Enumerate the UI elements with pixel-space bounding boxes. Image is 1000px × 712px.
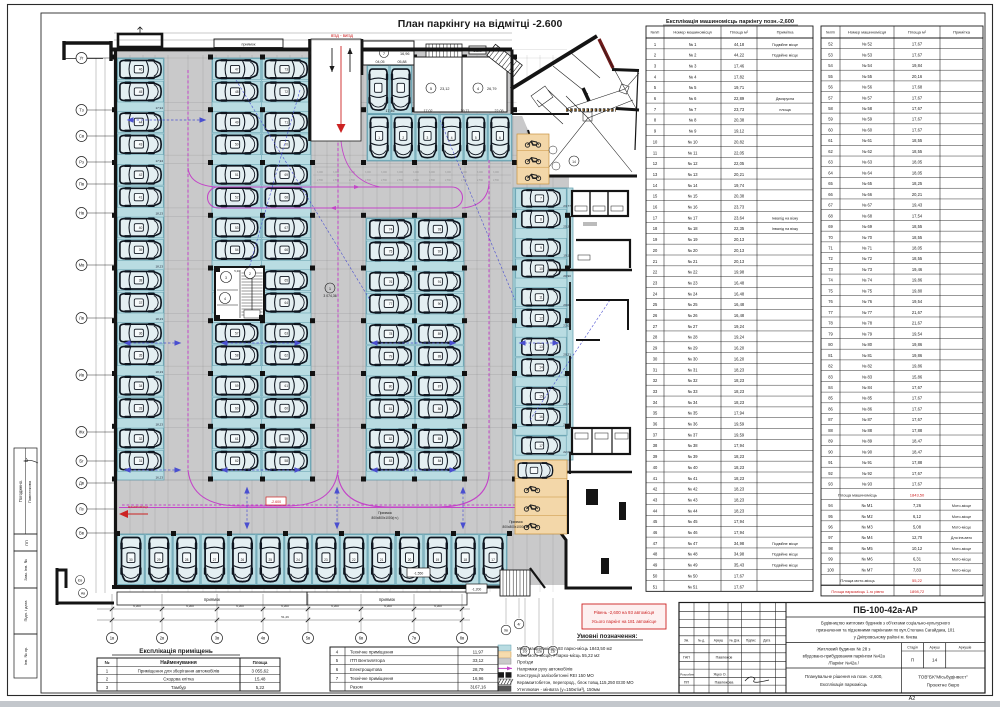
svg-text:Аркушів: Аркушів xyxy=(959,646,972,650)
svg-text:18,23: 18,23 xyxy=(734,400,745,405)
svg-text:Подвійне місце: Подвійне місце xyxy=(772,553,798,557)
svg-text:18: 18 xyxy=(653,226,658,231)
svg-text:17,98: 17,98 xyxy=(462,580,470,584)
svg-text:Номер машиномісця: Номер машиномісця xyxy=(673,30,711,35)
svg-text:10: 10 xyxy=(539,267,543,271)
svg-text:17,98: 17,98 xyxy=(155,580,163,584)
svg-text:Аркуш: Аркуш xyxy=(930,646,940,650)
svg-text:19,74: 19,74 xyxy=(734,183,745,188)
svg-text:17,98: 17,98 xyxy=(406,580,414,584)
svg-text:24: 24 xyxy=(653,291,658,296)
svg-text:17,67: 17,67 xyxy=(912,127,923,132)
svg-text:6,300: 6,300 xyxy=(133,604,141,608)
svg-text:1843,50: 1843,50 xyxy=(910,492,925,497)
svg-text:3: 3 xyxy=(225,276,227,280)
svg-text:Тз: Тз xyxy=(79,108,84,113)
svg-text:54: 54 xyxy=(828,63,833,68)
svg-text:63: 63 xyxy=(828,160,833,165)
svg-text:79: 79 xyxy=(828,331,833,336)
svg-text:25: 25 xyxy=(653,302,658,307)
svg-text:1в: 1в xyxy=(110,636,115,641)
svg-text:№ 83: № 83 xyxy=(862,374,873,379)
svg-text:Приямок: Приямок xyxy=(509,520,523,524)
svg-text:18,23: 18,23 xyxy=(734,389,745,394)
svg-text:28,79: 28,79 xyxy=(473,667,485,672)
svg-text:24: 24 xyxy=(296,558,300,562)
svg-text:Утеплювач - мінвата (у=150кг/м: Утеплювач - мінвата (у=150кг/м³), 150мм xyxy=(517,687,600,692)
svg-text:Ив: Ив xyxy=(79,373,85,378)
svg-text:3 074,36: 3 074,36 xyxy=(323,294,336,298)
svg-text:№п/п: №п/п xyxy=(651,31,660,35)
svg-text:2: 2 xyxy=(249,272,251,276)
svg-text:№ 84: № 84 xyxy=(862,385,873,390)
svg-text:800х800х1000(гл.): 800х800х1000(гл.) xyxy=(503,525,530,529)
svg-text:3: 3 xyxy=(427,136,429,140)
svg-text:3,000: 3,000 xyxy=(445,171,452,174)
svg-text:18,55: 18,55 xyxy=(912,235,923,240)
svg-text:7,26: 7,26 xyxy=(913,503,922,508)
svg-text:№ 90: № 90 xyxy=(862,449,873,454)
svg-text:81: 81 xyxy=(828,353,833,358)
svg-text:42: 42 xyxy=(139,173,143,177)
svg-text:Єв: Єв xyxy=(78,579,83,583)
svg-text:№ М5: № М5 xyxy=(861,546,873,551)
svg-text:20: 20 xyxy=(653,248,658,253)
svg-text:48: 48 xyxy=(653,552,658,557)
svg-text:6в: 6в xyxy=(359,636,364,641)
svg-text:18,23: 18,23 xyxy=(734,378,745,383)
svg-text:20,13: 20,13 xyxy=(734,259,745,264)
svg-text:Розробив: Розробив xyxy=(680,672,694,676)
svg-text:14: 14 xyxy=(572,160,576,164)
svg-text:50: 50 xyxy=(235,143,239,147)
svg-text:18,23: 18,23 xyxy=(734,367,745,372)
svg-text:№ М7: № М7 xyxy=(861,567,873,572)
svg-text:1898,72: 1898,72 xyxy=(910,589,925,594)
svg-text:35: 35 xyxy=(139,354,143,358)
svg-text:22,05: 22,05 xyxy=(734,161,745,166)
svg-text:88: 88 xyxy=(438,354,442,358)
svg-text:План паркінгу на відмітці -2.6: План паркінгу на відмітці -2.600 xyxy=(398,18,563,30)
svg-text:85: 85 xyxy=(828,396,833,401)
svg-text:87: 87 xyxy=(438,385,442,389)
svg-text:17,67: 17,67 xyxy=(912,52,923,57)
svg-text:№ 81: № 81 xyxy=(862,353,873,358)
svg-text:№ 20: № 20 xyxy=(687,248,698,253)
svg-text:20,16: 20,16 xyxy=(912,74,923,79)
svg-text:20,21: 20,21 xyxy=(734,172,745,177)
svg-text:Експлікація паркомісць: Експлікація паркомісць xyxy=(820,682,868,687)
svg-text:19,98: 19,98 xyxy=(734,270,745,275)
svg-text:Приміщення для зберігання авто: Приміщення для зберігання автомобілів xyxy=(138,668,220,673)
svg-text:17,98: 17,98 xyxy=(490,580,498,584)
svg-text:№: № xyxy=(105,660,110,665)
svg-text:65: 65 xyxy=(284,279,288,283)
svg-text:73: 73 xyxy=(284,68,288,72)
svg-text:Павлюкова: Павлюкова xyxy=(715,680,734,684)
svg-text:18,23: 18,23 xyxy=(734,465,745,470)
svg-text:№ 71: № 71 xyxy=(862,246,873,251)
svg-text:19,59: 19,59 xyxy=(734,422,745,427)
svg-text:11: 11 xyxy=(653,150,658,155)
svg-text:18,05: 18,05 xyxy=(912,246,923,251)
svg-text:34,98: 34,98 xyxy=(734,541,745,546)
svg-text:32: 32 xyxy=(653,378,658,383)
svg-text:35,43: 35,43 xyxy=(734,563,745,568)
svg-text:51: 51 xyxy=(235,173,239,177)
svg-text:Сходова клітка: Сходова клітка xyxy=(163,677,194,682)
svg-text:89: 89 xyxy=(828,439,833,444)
svg-text:-1.200: -1.200 xyxy=(472,588,482,592)
svg-text:34: 34 xyxy=(139,384,143,388)
svg-text:41: 41 xyxy=(139,195,143,199)
svg-text:18,05: 18,05 xyxy=(912,170,923,175)
svg-text:52: 52 xyxy=(235,195,239,199)
svg-text:20: 20 xyxy=(408,558,412,562)
svg-text:Площа м²: Площа м² xyxy=(908,30,927,35)
svg-text:21: 21 xyxy=(380,558,384,562)
svg-text:30: 30 xyxy=(129,558,133,562)
svg-text:39: 39 xyxy=(653,454,658,459)
svg-text:№ 35: № 35 xyxy=(687,411,698,416)
svg-text:17,88: 17,88 xyxy=(912,428,923,433)
svg-text:15: 15 xyxy=(653,194,658,199)
svg-text:А2: А2 xyxy=(909,696,916,702)
svg-text:Лв: Лв xyxy=(79,316,85,321)
svg-text:6,31: 6,31 xyxy=(913,557,922,562)
svg-text:№ 9: № 9 xyxy=(689,129,698,134)
svg-text:27: 27 xyxy=(653,324,658,329)
svg-text:19,71: 19,71 xyxy=(734,85,745,90)
svg-text:Рз: Рз xyxy=(79,160,84,165)
svg-text:Зам. Інв. №: Зам. Інв. № xyxy=(23,559,28,581)
svg-text:17,94: 17,94 xyxy=(734,530,745,535)
svg-text:15: 15 xyxy=(539,394,543,398)
svg-text:58: 58 xyxy=(235,354,239,358)
svg-text:Разом: Разом xyxy=(350,685,363,690)
svg-text:92: 92 xyxy=(438,250,442,254)
svg-text:9в: 9в xyxy=(504,628,508,632)
svg-text:10,12: 10,12 xyxy=(912,546,923,551)
svg-text:71: 71 xyxy=(284,120,288,124)
svg-text:2,550: 2,550 xyxy=(429,179,436,182)
svg-text:Дата: Дата xyxy=(763,639,770,643)
svg-text:6: 6 xyxy=(499,136,501,140)
svg-text:16: 16 xyxy=(653,205,658,210)
svg-text:55,22: 55,22 xyxy=(912,578,923,583)
svg-text:Двоярусна: Двоярусна xyxy=(776,97,795,101)
svg-text:12: 12 xyxy=(539,316,543,320)
svg-text:№ 19: № 19 xyxy=(687,237,698,242)
svg-text:№ 55: № 55 xyxy=(862,74,873,79)
svg-text:28: 28 xyxy=(185,558,189,562)
svg-text:Площа паркомісць 1-го рівня: Площа паркомісць 1-го рівня xyxy=(831,589,883,594)
svg-text:56: 56 xyxy=(828,85,833,90)
svg-text:Подвійне місце: Подвійне місце xyxy=(772,542,798,546)
svg-text:83: 83 xyxy=(389,459,393,463)
svg-text:№ 27: № 27 xyxy=(687,324,698,329)
svg-text:93: 93 xyxy=(438,227,442,231)
svg-text:№ 23: № 23 xyxy=(687,280,698,285)
svg-text:№ 39: № 39 xyxy=(687,454,698,459)
svg-text:17,94: 17,94 xyxy=(155,106,163,110)
svg-text:17,67: 17,67 xyxy=(912,95,923,100)
svg-text:82: 82 xyxy=(828,364,833,369)
svg-text:Павленкова: Павленкова xyxy=(27,480,32,503)
svg-text:№ 36: № 36 xyxy=(687,422,698,427)
svg-text:Мото-місце: Мото-місце xyxy=(952,558,971,562)
svg-text:17,46: 17,46 xyxy=(734,63,745,68)
svg-text:№ 32: № 32 xyxy=(687,378,698,383)
svg-text:№ 56: № 56 xyxy=(862,85,873,90)
svg-text:машиномісця: машиномісця xyxy=(128,505,148,509)
svg-text:№ 74: № 74 xyxy=(862,278,873,283)
svg-text:20,21: 20,21 xyxy=(912,192,923,197)
svg-text:№ 34: № 34 xyxy=(687,400,698,405)
svg-text:33: 33 xyxy=(139,406,143,410)
svg-text:16,20: 16,20 xyxy=(734,346,745,351)
svg-text:№ 24: № 24 xyxy=(687,291,698,296)
svg-text:19,24: 19,24 xyxy=(734,324,745,329)
svg-text:54: 54 xyxy=(235,248,239,252)
svg-text:Вв: Вв xyxy=(79,531,85,536)
svg-text:41: 41 xyxy=(653,476,658,481)
svg-text:Стадія: Стадія xyxy=(907,646,918,650)
svg-text:№ Док.: № Док. xyxy=(730,639,741,643)
svg-text:98: 98 xyxy=(828,546,833,551)
svg-text:19,43: 19,43 xyxy=(912,203,923,208)
svg-text:26: 26 xyxy=(653,313,658,318)
svg-text:№ 88: № 88 xyxy=(862,428,873,433)
svg-text:№ 26: № 26 xyxy=(687,313,698,318)
svg-text:2,550: 2,550 xyxy=(445,179,452,182)
svg-text:36: 36 xyxy=(139,331,143,335)
svg-text:31: 31 xyxy=(653,367,658,372)
svg-text:№ 59: № 59 xyxy=(862,117,873,122)
svg-text:17,82: 17,82 xyxy=(734,74,745,79)
svg-text:3,000: 3,000 xyxy=(397,171,404,174)
svg-text:23: 23 xyxy=(653,280,658,285)
svg-text:№ 18: № 18 xyxy=(687,226,698,231)
svg-text:№ 7: № 7 xyxy=(689,107,698,112)
svg-text:16,96: 16,96 xyxy=(400,52,410,56)
svg-text:52: 52 xyxy=(828,42,833,47)
svg-text:Площа машиномісць: Площа машиномісць xyxy=(838,492,877,497)
svg-text:81: 81 xyxy=(389,407,393,411)
svg-text:№ 33: № 33 xyxy=(687,389,698,394)
svg-text:18,23: 18,23 xyxy=(734,497,745,502)
svg-text:87: 87 xyxy=(828,417,833,422)
svg-text:вбудовано-прибудованим паркінг: вбудовано-прибудованим паркінгом №42а xyxy=(803,654,886,659)
svg-text:№ 53: № 53 xyxy=(862,52,873,57)
svg-text:№ 77: № 77 xyxy=(862,310,873,315)
svg-text:19,24: 19,24 xyxy=(734,335,745,340)
svg-text:17,67: 17,67 xyxy=(912,42,923,47)
svg-text:62: 62 xyxy=(284,354,288,358)
svg-text:№ 72: № 72 xyxy=(862,256,873,261)
svg-text:№ 76: № 76 xyxy=(862,299,873,304)
svg-text:№ 3: № 3 xyxy=(689,63,698,68)
svg-text:№ 25: № 25 xyxy=(687,302,698,307)
svg-text:17,98: 17,98 xyxy=(322,580,330,584)
svg-text:17,88: 17,88 xyxy=(912,460,923,465)
svg-text:74: 74 xyxy=(389,227,393,231)
svg-text:17,54: 17,54 xyxy=(912,213,923,218)
svg-text:66: 66 xyxy=(284,248,288,252)
svg-text:69: 69 xyxy=(284,173,288,177)
svg-text:17,98: 17,98 xyxy=(267,580,275,584)
svg-text:ГАП: ГАП xyxy=(683,656,690,660)
svg-text:№ 6: № 6 xyxy=(689,96,698,101)
svg-text:16: 16 xyxy=(539,415,543,419)
svg-text:61: 61 xyxy=(284,384,288,388)
svg-text:19,54: 19,54 xyxy=(912,299,923,304)
svg-text:25: 25 xyxy=(268,558,272,562)
svg-text:18,55: 18,55 xyxy=(912,224,923,229)
svg-text:Конструкції залізобетонні REI: Конструкції залізобетонні REI 150 МО xyxy=(517,673,594,678)
svg-text:20,21: 20,21 xyxy=(563,352,571,356)
svg-text:6,12: 6,12 xyxy=(913,514,922,519)
svg-text:20,38: 20,38 xyxy=(734,194,745,199)
svg-text:№ 5: № 5 xyxy=(689,85,698,90)
svg-text:№ 75: № 75 xyxy=(862,288,873,293)
svg-text:№ 91: № 91 xyxy=(862,460,873,465)
svg-text:Жк: Жк xyxy=(79,430,85,435)
svg-text:21: 21 xyxy=(653,259,658,264)
svg-text:19: 19 xyxy=(653,237,658,242)
svg-text:6,300: 6,300 xyxy=(281,604,289,608)
svg-text:Мото-місце: Мото-місце xyxy=(952,568,971,572)
svg-text:Електрощитова: Електрощитова xyxy=(350,667,383,672)
svg-text:21,67: 21,67 xyxy=(912,321,923,326)
svg-text:83: 83 xyxy=(828,374,833,379)
svg-text:17: 17 xyxy=(491,558,495,562)
svg-text:44,22: 44,22 xyxy=(734,53,745,58)
svg-text:№ 52: № 52 xyxy=(862,42,873,47)
svg-text:№ 46: № 46 xyxy=(687,530,698,535)
svg-text:Площа м²: Площа м² xyxy=(730,30,749,35)
svg-text:75: 75 xyxy=(828,288,833,293)
svg-text:14: 14 xyxy=(653,183,658,188)
svg-text:№ М1: № М1 xyxy=(861,503,873,508)
svg-text:80: 80 xyxy=(389,385,393,389)
svg-text:48: 48 xyxy=(235,90,239,94)
svg-text:№ 45: № 45 xyxy=(687,519,698,524)
svg-text:17,68: 17,68 xyxy=(912,85,923,90)
svg-text:69: 69 xyxy=(828,224,833,229)
svg-text:Примітка: Примітка xyxy=(777,30,795,35)
svg-text:90: 90 xyxy=(438,302,442,306)
svg-text:60: 60 xyxy=(828,127,833,132)
svg-text:Дв: Дв xyxy=(79,481,85,486)
svg-text:№ 80: № 80 xyxy=(862,342,873,347)
svg-text:58: 58 xyxy=(828,106,833,111)
svg-text:3,000: 3,000 xyxy=(317,171,324,174)
svg-text:18,23: 18,23 xyxy=(734,508,745,513)
svg-text:Підпис: Підпис xyxy=(746,639,756,643)
svg-text:22,89: 22,89 xyxy=(734,96,745,101)
svg-text:16,48: 16,48 xyxy=(734,302,745,307)
svg-text:№ 51: № 51 xyxy=(687,584,698,589)
svg-text:5в: 5в xyxy=(306,636,311,641)
svg-text:Підп. і дата: Підп. і дата xyxy=(23,600,28,622)
svg-text:№ 15: № 15 xyxy=(687,194,698,199)
svg-text:№ 54: № 54 xyxy=(862,63,873,68)
svg-text:17,98: 17,98 xyxy=(295,580,303,584)
svg-text:№ 49: № 49 xyxy=(687,563,698,568)
svg-text:17,98: 17,98 xyxy=(434,580,442,584)
svg-text:47: 47 xyxy=(653,541,658,546)
svg-text:5,08: 5,08 xyxy=(913,524,922,529)
svg-text:4в: 4в xyxy=(261,636,266,641)
svg-text:53: 53 xyxy=(828,52,833,57)
svg-text:62: 62 xyxy=(235,459,239,463)
svg-text:75: 75 xyxy=(389,250,393,254)
svg-text:Тамбур: Тамбур xyxy=(171,685,186,690)
svg-text:№ 2: № 2 xyxy=(689,53,698,58)
svg-text:ПП: ПП xyxy=(684,680,690,684)
svg-text:5: 5 xyxy=(475,136,477,140)
svg-text:95: 95 xyxy=(828,514,833,519)
svg-text:17,98: 17,98 xyxy=(183,580,191,584)
svg-text:22,35: 22,35 xyxy=(734,226,745,231)
svg-text:16,48: 16,48 xyxy=(734,313,745,318)
svg-text:19,71: 19,71 xyxy=(461,109,470,113)
svg-text:50: 50 xyxy=(653,573,658,578)
svg-text:6,300: 6,300 xyxy=(434,604,442,608)
svg-text:28: 28 xyxy=(653,335,658,340)
svg-text:17,67: 17,67 xyxy=(912,117,923,122)
svg-text:2,550: 2,550 xyxy=(317,179,324,182)
svg-text:№ 41: № 41 xyxy=(687,476,698,481)
svg-text:88: 88 xyxy=(828,428,833,433)
svg-text:17,67: 17,67 xyxy=(912,406,923,411)
svg-text:№ 73: № 73 xyxy=(862,267,873,272)
svg-text:23,12: 23,12 xyxy=(440,87,450,91)
svg-text:17,67: 17,67 xyxy=(912,417,923,422)
svg-text:3,000: 3,000 xyxy=(493,171,500,174)
svg-text:№ 78: № 78 xyxy=(862,321,873,326)
svg-text:Номер машиномісця: Номер машиномісця xyxy=(848,30,886,35)
svg-text:Усього паркінг на 181 автомісц: Усього паркінг на 181 автомісце xyxy=(592,619,657,624)
svg-text:49: 49 xyxy=(235,120,239,124)
svg-text:№ 64: № 64 xyxy=(862,170,873,175)
svg-text:18: 18 xyxy=(463,558,467,562)
svg-text:№ 4: № 4 xyxy=(689,74,698,79)
svg-text:2,550: 2,550 xyxy=(381,179,388,182)
svg-text:67: 67 xyxy=(284,226,288,230)
svg-text:57: 57 xyxy=(828,95,833,100)
svg-text:№ 44: № 44 xyxy=(687,508,698,513)
svg-text:70: 70 xyxy=(828,235,833,240)
svg-text:26,79: 26,79 xyxy=(487,87,497,91)
svg-text:Будівництво житлових будинків: Будівництво житлових будинків з об'єктам… xyxy=(821,621,951,626)
svg-text:16,48: 16,48 xyxy=(734,280,745,285)
svg-text:3,000: 3,000 xyxy=(429,171,436,174)
svg-text:20,38: 20,38 xyxy=(734,118,745,123)
svg-text:№ 10: № 10 xyxy=(687,139,698,144)
svg-text:Зм.: Зм. xyxy=(684,639,689,643)
svg-text:17,67: 17,67 xyxy=(912,471,923,476)
svg-text:№ 58: № 58 xyxy=(862,106,873,111)
svg-text:3,000: 3,000 xyxy=(413,171,420,174)
svg-text:8в: 8в xyxy=(460,636,465,641)
svg-text:Погоджено.: Погоджено. xyxy=(18,480,23,502)
svg-text:61: 61 xyxy=(828,138,833,143)
svg-text:Бг: Бг xyxy=(79,459,84,464)
svg-text:37: 37 xyxy=(653,432,658,437)
svg-text:34,98: 34,98 xyxy=(734,552,745,557)
